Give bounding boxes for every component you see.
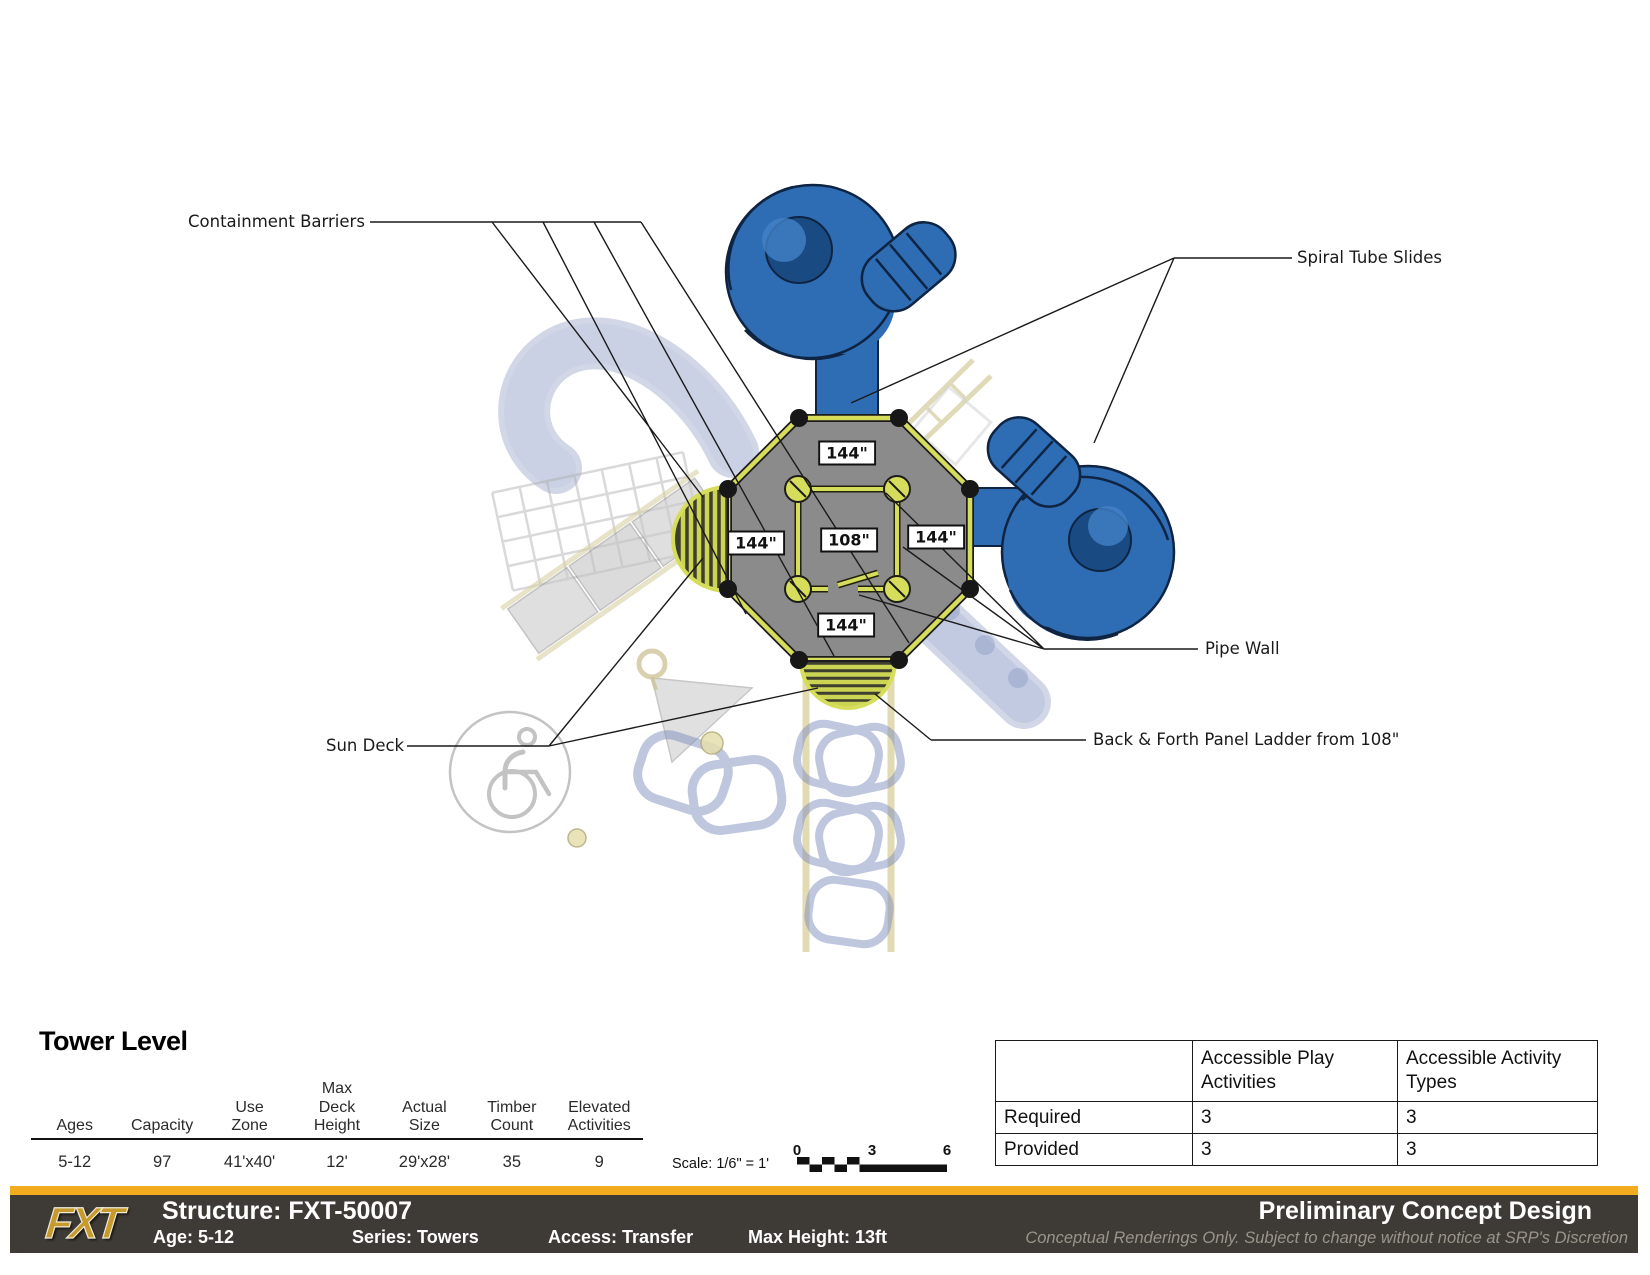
footer-disclaimer: Conceptual Renderings Only. Subject to c… — [1025, 1229, 1628, 1248]
spec-header-capacity: Capacity — [118, 1068, 205, 1138]
dimension-label-left: 144" — [727, 531, 785, 556]
accessibility-header-row: Accessible Play Activities Accessible Ac… — [996, 1041, 1598, 1102]
spec-header-use-zone: Use Zone — [206, 1068, 293, 1138]
footer-access: Access: Transfer — [548, 1227, 693, 1248]
dimension-label-bottom: 144" — [817, 613, 875, 638]
spec-value-elevated-activities: 9 — [556, 1153, 643, 1172]
footer-structure: Structure: FXT-50007 — [162, 1197, 412, 1226]
accessibility-required-row: Required 3 3 — [996, 1102, 1598, 1134]
spec-table: Ages Capacity Use Zone Max Deck Height A… — [31, 1068, 643, 1172]
footer-accent-bar — [10, 1186, 1638, 1195]
dimension-label-center: 108" — [820, 528, 878, 553]
spec-header-row: Ages Capacity Use Zone Max Deck Height A… — [31, 1068, 643, 1140]
footer-design-title: Preliminary Concept Design — [1259, 1197, 1592, 1226]
scale-bar — [797, 1157, 947, 1172]
spec-value-max-deck-height: 12' — [293, 1153, 380, 1172]
accessibility-icon — [450, 712, 570, 832]
spec-header-max-deck-height: Max Deck Height — [293, 1068, 380, 1138]
callout-spiral-tube-slides: Spiral Tube Slides — [1297, 248, 1442, 267]
accessibility-provided-row: Provided 3 3 — [996, 1134, 1598, 1166]
required-activity-types: 3 — [1398, 1102, 1598, 1134]
scale-tick-3: 3 — [868, 1142, 876, 1159]
spec-value-ages: 5-12 — [31, 1153, 118, 1172]
scale-label: Scale: 1/6" = 1' — [672, 1156, 769, 1172]
scale-tick-6: 6 — [943, 1142, 951, 1159]
spiral-tube-slide-right — [962, 406, 1174, 639]
provided-play-activities: 3 — [1193, 1134, 1398, 1166]
footer-series: Series: Towers — [352, 1227, 479, 1248]
dimension-label-right: 144" — [907, 525, 965, 550]
ghost-equipment — [450, 343, 1028, 952]
accessibility-table: Accessible Play Activities Accessible Ac… — [995, 1040, 1598, 1166]
accessibility-header-blank — [996, 1041, 1193, 1102]
spec-value-actual-size: 29'x28' — [381, 1153, 468, 1172]
provided-label: Provided — [996, 1134, 1193, 1166]
spec-header-ages: Ages — [31, 1068, 118, 1138]
accessibility-header-activity-types: Accessible Activity Types — [1398, 1041, 1598, 1102]
footer-age: Age: 5-12 — [153, 1227, 234, 1248]
footer-max-height: Max Height: 13ft — [748, 1227, 887, 1248]
accessibility-header-play-activities: Accessible Play Activities — [1193, 1041, 1398, 1102]
required-play-activities: 3 — [1193, 1102, 1398, 1134]
spec-value-use-zone: 41'x40' — [206, 1153, 293, 1172]
scale-tick-0: 0 — [793, 1142, 801, 1159]
spec-value-row: 5-12 97 41'x40' 12' 29'x28' 35 9 — [31, 1153, 643, 1172]
tower-level-title: Tower Level — [39, 1026, 188, 1057]
spiral-tube-slide-top — [726, 185, 967, 422]
dimension-label-top: 144" — [818, 441, 876, 466]
required-label: Required — [996, 1102, 1193, 1134]
provided-activity-types: 3 — [1398, 1134, 1598, 1166]
spec-value-capacity: 97 — [118, 1153, 205, 1172]
callout-panel-ladder: Back & Forth Panel Ladder from 108" — [1093, 730, 1399, 749]
concept-design-page: Containment Barriers Spiral Tube Slides … — [0, 0, 1650, 1275]
callout-pipe-wall: Pipe Wall — [1205, 639, 1280, 658]
spec-header-elevated-activities: Elevated Activities — [556, 1068, 643, 1138]
fxt-logo: FXT — [43, 1199, 122, 1249]
spec-value-timber-count: 35 — [468, 1153, 555, 1172]
spec-header-actual-size: Actual Size — [381, 1068, 468, 1138]
callout-containment-barriers: Containment Barriers — [188, 212, 365, 231]
spec-header-timber-count: Timber Count — [468, 1068, 555, 1138]
callout-sun-deck: Sun Deck — [326, 736, 404, 755]
